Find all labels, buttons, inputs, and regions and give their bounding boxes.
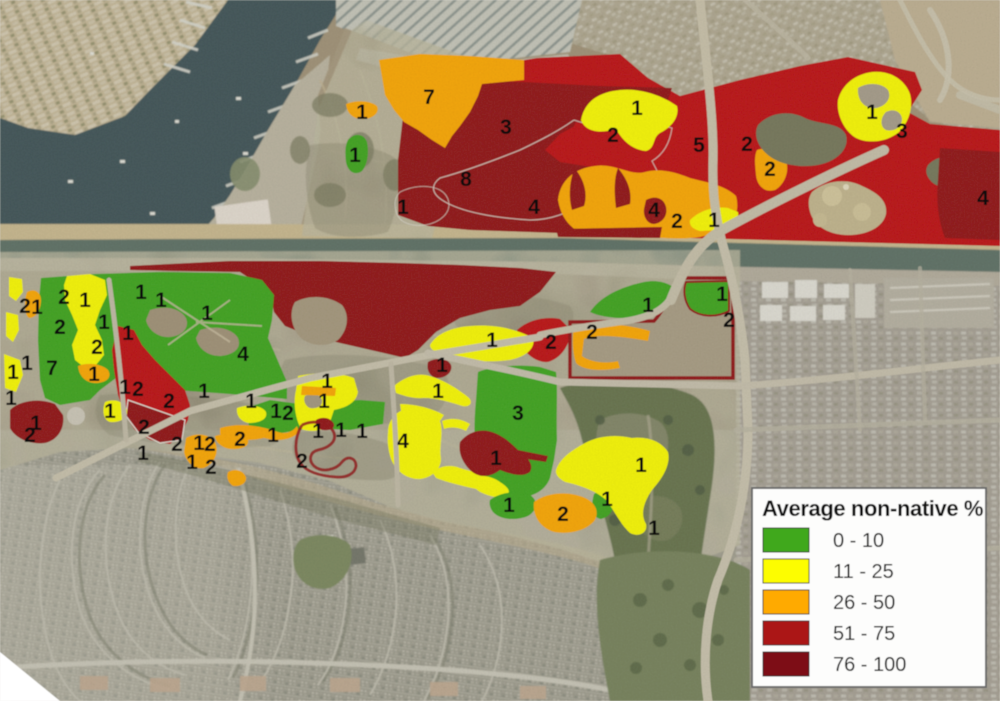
svg-text:3: 3 — [512, 402, 524, 425]
svg-text:2: 2 — [58, 286, 70, 309]
svg-text:1: 1 — [201, 302, 213, 325]
svg-text:1: 1 — [186, 451, 198, 474]
svg-text:3: 3 — [896, 120, 908, 143]
svg-text:2: 2 — [132, 378, 144, 401]
svg-text:1: 1 — [155, 289, 167, 312]
svg-text:8: 8 — [460, 168, 472, 191]
svg-text:1: 1 — [642, 294, 654, 317]
svg-text:2: 2 — [91, 336, 103, 359]
svg-text:1: 1 — [318, 390, 330, 413]
svg-text:2: 2 — [741, 133, 753, 156]
svg-text:1: 1 — [5, 387, 17, 410]
svg-text:1: 1 — [119, 376, 131, 399]
svg-text:1: 1 — [122, 322, 134, 345]
svg-text:2: 2 — [234, 428, 246, 451]
svg-text:1: 1 — [601, 488, 613, 511]
svg-text:2: 2 — [586, 321, 598, 344]
svg-text:11 - 25: 11 - 25 — [833, 561, 894, 583]
svg-text:1: 1 — [635, 454, 647, 477]
svg-text:7: 7 — [423, 86, 435, 109]
svg-text:1: 1 — [356, 101, 368, 124]
svg-text:76 - 100: 76 - 100 — [833, 654, 906, 676]
svg-text:1: 1 — [503, 494, 515, 517]
svg-text:4: 4 — [237, 343, 249, 366]
svg-text:1: 1 — [21, 352, 33, 375]
svg-text:1: 1 — [356, 420, 368, 443]
svg-text:1: 1 — [631, 97, 643, 120]
svg-text:2: 2 — [163, 390, 175, 413]
svg-text:2: 2 — [282, 402, 294, 425]
svg-text:2: 2 — [671, 210, 683, 233]
svg-text:1: 1 — [486, 329, 498, 352]
svg-text:1: 1 — [349, 144, 361, 167]
svg-text:7: 7 — [46, 357, 58, 380]
svg-text:1: 1 — [7, 361, 19, 384]
svg-text:4: 4 — [397, 430, 409, 453]
svg-text:1: 1 — [135, 281, 147, 304]
svg-text:1: 1 — [267, 424, 279, 447]
svg-text:4: 4 — [528, 196, 540, 219]
svg-text:1: 1 — [708, 209, 720, 232]
svg-text:4: 4 — [977, 187, 989, 210]
svg-text:1: 1 — [648, 517, 660, 540]
svg-text:1: 1 — [866, 101, 878, 124]
svg-text:1: 1 — [104, 400, 116, 423]
svg-text:2: 2 — [138, 416, 150, 439]
svg-text:2: 2 — [723, 309, 735, 332]
svg-text:2: 2 — [204, 433, 216, 456]
svg-text:1: 1 — [716, 283, 728, 306]
svg-text:2: 2 — [205, 456, 217, 479]
svg-text:1: 1 — [490, 447, 502, 470]
svg-text:2: 2 — [54, 316, 66, 339]
svg-text:2: 2 — [607, 124, 619, 147]
svg-text:1: 1 — [312, 420, 324, 443]
svg-text:0 - 10: 0 - 10 — [833, 530, 884, 552]
svg-text:1: 1 — [432, 380, 444, 403]
svg-text:3: 3 — [500, 116, 512, 139]
svg-text:1: 1 — [88, 363, 100, 386]
svg-text:1: 1 — [270, 400, 282, 423]
svg-text:1: 1 — [436, 354, 448, 377]
svg-text:Average non-native %: Average non-native % — [762, 496, 983, 521]
svg-text:1: 1 — [198, 380, 210, 403]
svg-text:4: 4 — [648, 199, 660, 222]
svg-text:1: 1 — [31, 296, 43, 319]
svg-text:2: 2 — [296, 450, 308, 473]
svg-text:1: 1 — [397, 196, 409, 219]
svg-text:2: 2 — [19, 295, 31, 318]
svg-text:1: 1 — [79, 289, 91, 312]
svg-text:2: 2 — [764, 158, 776, 181]
svg-text:1: 1 — [137, 442, 149, 465]
svg-text:1: 1 — [335, 419, 347, 442]
svg-text:2: 2 — [557, 503, 569, 526]
svg-text:1: 1 — [98, 311, 110, 334]
svg-text:26 - 50: 26 - 50 — [833, 592, 895, 614]
svg-text:5: 5 — [693, 134, 705, 157]
svg-text:2: 2 — [24, 424, 36, 447]
svg-text:2: 2 — [545, 331, 557, 354]
svg-text:1: 1 — [245, 390, 257, 413]
svg-text:51 - 75: 51 - 75 — [833, 623, 895, 645]
svg-text:2: 2 — [171, 433, 183, 456]
